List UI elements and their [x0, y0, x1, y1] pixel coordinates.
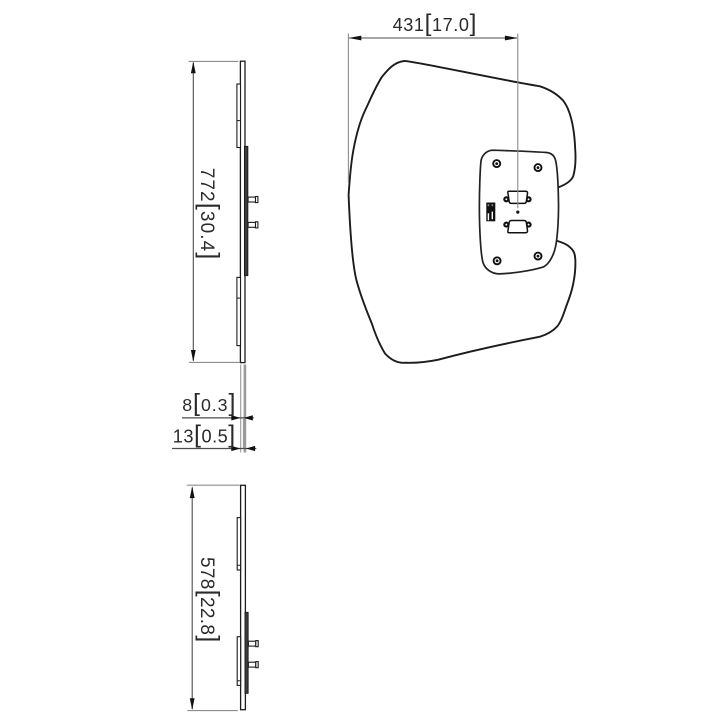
svg-text:431[17.0]: 431[17.0] [393, 10, 477, 37]
